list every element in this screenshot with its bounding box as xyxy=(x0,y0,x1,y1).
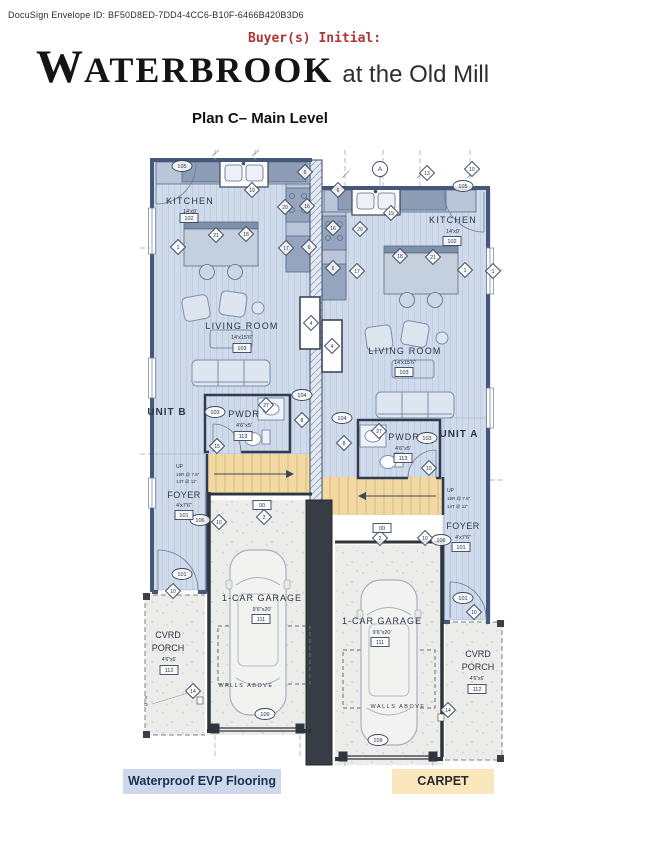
keynote-101: 101 xyxy=(175,511,193,520)
svg-text:1: 1 xyxy=(492,269,495,275)
svg-text:113: 113 xyxy=(399,456,408,462)
plan-label-unit-a: UNIT A xyxy=(440,429,479,440)
plan-label-living-room: LIVING ROOM xyxy=(368,346,441,356)
car-unit-a-garage xyxy=(357,580,421,745)
svg-text:111: 111 xyxy=(257,617,265,623)
plan-label-1-car-garage: 1-CAR GARAGE xyxy=(222,593,302,603)
svg-text:10: 10 xyxy=(216,520,222,526)
svg-text:101: 101 xyxy=(456,545,465,551)
svg-text:109: 109 xyxy=(260,712,269,718)
svg-text:6: 6 xyxy=(308,245,311,251)
svg-text:10: 10 xyxy=(469,167,475,173)
svg-text:14: 14 xyxy=(190,689,196,695)
legend-carpet: CARPET xyxy=(392,769,494,794)
plan-label-15r-7-5-: 15R @ 7.5" xyxy=(176,472,200,477)
svg-text:10: 10 xyxy=(471,610,477,616)
svg-text:14: 14 xyxy=(445,708,451,714)
svg-text:105: 105 xyxy=(177,164,186,170)
keynote-103: 103 xyxy=(395,368,413,377)
plan-label-4-6-x6-: 4'6"x6' xyxy=(470,676,485,682)
plan-label-walls-above: WALLS ABOVE xyxy=(370,704,425,710)
svg-text:A: A xyxy=(378,166,383,173)
svg-text:15: 15 xyxy=(426,466,432,472)
svg-text:1: 1 xyxy=(464,268,467,274)
brand-initial-letter: W xyxy=(36,41,84,93)
keynote-103: 103 xyxy=(417,433,437,444)
svg-text:19: 19 xyxy=(388,211,394,217)
plan-label-living-room: LIVING ROOM xyxy=(205,321,278,331)
porch-post-detail-b xyxy=(197,697,203,704)
svg-text:18: 18 xyxy=(243,232,249,238)
keynote-112: 112 xyxy=(160,666,178,675)
keynote-113: 113 xyxy=(394,454,412,463)
keynote-101: 101 xyxy=(452,543,470,552)
plan-label-14t-11-: 14T @ 11" xyxy=(447,504,468,509)
keynote-106: 106 xyxy=(431,535,451,546)
svg-text:20: 20 xyxy=(282,205,288,211)
svg-text:101: 101 xyxy=(458,596,467,602)
plan-label-up: UP xyxy=(176,464,184,470)
svg-text:102: 102 xyxy=(184,216,193,222)
plan-label-foyer: FOYER xyxy=(446,521,480,531)
plan-label-pwdr: PWDR xyxy=(388,432,420,442)
plan-label-cvrd: CVRD xyxy=(155,630,181,640)
keynote-111: 111 xyxy=(371,638,389,647)
svg-text:2: 2 xyxy=(379,536,382,542)
svg-text:13: 13 xyxy=(424,171,430,177)
svg-text:10: 10 xyxy=(170,589,176,595)
plan-label-pwdr: PWDR xyxy=(228,409,260,419)
svg-text:19: 19 xyxy=(249,188,255,194)
svg-text:105: 105 xyxy=(458,184,467,190)
svg-text:111: 111 xyxy=(376,640,384,646)
plan-label-4-x7-6-: 4'x7'6" xyxy=(176,503,192,509)
plan-label-4-x7-6-: 4'x7'6" xyxy=(455,535,471,541)
svg-text:6: 6 xyxy=(332,266,335,272)
svg-text:27: 27 xyxy=(376,429,382,435)
svg-text:8: 8 xyxy=(301,418,304,424)
stairs-unit-b xyxy=(207,454,318,492)
keynote-103: 103 xyxy=(205,407,225,418)
keynote-109: 109 xyxy=(368,735,388,746)
plan-label-porch: PORCH xyxy=(462,662,495,672)
plan-label-cvrd: CVRD xyxy=(465,649,491,659)
keynote-10: 10 xyxy=(465,162,480,177)
brand-subtitle: at the Old Mill xyxy=(342,61,489,88)
keynote-105: 105 xyxy=(453,181,473,192)
svg-text:1: 1 xyxy=(177,245,180,251)
keynote-00: 00 xyxy=(253,501,271,510)
kitchen-unit-a xyxy=(322,189,476,308)
plan-label-4-6-x5-: 4'6"x5' xyxy=(236,423,252,429)
svg-text:16: 16 xyxy=(330,226,336,232)
svg-text:109: 109 xyxy=(373,738,382,744)
plan-label-walls-above: WALLS ABOVE xyxy=(218,683,273,689)
plan-label-porch: PORCH xyxy=(152,643,185,653)
plan-label-14-x15-6-: 14'x15'6" xyxy=(394,360,416,366)
svg-text:113: 113 xyxy=(239,434,248,440)
svg-text:15: 15 xyxy=(214,444,220,450)
plan-label-4-6-x6-: 4'6"x6' xyxy=(162,657,177,663)
keynote-101: 101 xyxy=(172,569,192,580)
plan-label-kitchen: KITCHEN xyxy=(166,196,214,206)
svg-text:10: 10 xyxy=(422,536,428,542)
svg-text:104: 104 xyxy=(337,416,346,422)
keynote-104: 104 xyxy=(332,413,352,424)
svg-text:112: 112 xyxy=(165,668,174,674)
svg-text:16: 16 xyxy=(304,204,310,210)
svg-text:2: 2 xyxy=(263,515,266,521)
svg-text:8: 8 xyxy=(343,441,346,447)
keynote-103: 103 xyxy=(233,344,251,353)
svg-text:00: 00 xyxy=(259,503,265,509)
svg-text:103: 103 xyxy=(210,410,219,416)
plan-label-x: X xyxy=(144,695,147,700)
svg-text:101: 101 xyxy=(179,513,188,519)
keynote-101: 101 xyxy=(453,593,473,604)
brand-title: WATERBROOKat the Old Mill xyxy=(36,40,489,94)
svg-text:20: 20 xyxy=(357,227,363,233)
svg-text:112: 112 xyxy=(473,687,482,693)
svg-text:6: 6 xyxy=(337,188,340,194)
document-page: DocuSign Envelope ID: BF50D8ED-7DD4-4CC6… xyxy=(0,0,650,841)
stairs-unit-a xyxy=(322,477,443,515)
keynote-105: 105 xyxy=(172,161,192,172)
plan-label-kitchen: KITCHEN xyxy=(429,215,477,225)
svg-text:103: 103 xyxy=(422,436,431,442)
svg-text:106: 106 xyxy=(436,538,445,544)
svg-text:00: 00 xyxy=(379,526,385,532)
svg-text:21: 21 xyxy=(213,233,219,239)
plan-label-foyer: FOYER xyxy=(167,490,201,500)
plan-label-4-6-x5-: 4'6"x5' xyxy=(395,446,411,452)
keynote-102: 102 xyxy=(180,214,198,223)
porch-post-detail-a xyxy=(438,714,444,721)
plan-title: Plan C– Main Level xyxy=(0,110,520,127)
keynote-111: 111 xyxy=(252,615,270,624)
plan-label-14-x15-6-: 14'x15'6" xyxy=(231,335,253,341)
svg-text:103: 103 xyxy=(399,370,408,376)
legend-evp-flooring: Waterproof EVP Flooring xyxy=(123,769,281,794)
svg-text:102: 102 xyxy=(447,239,456,245)
keynote-00: 00 xyxy=(373,524,391,533)
svg-text:106: 106 xyxy=(195,518,204,524)
svg-text:101: 101 xyxy=(177,572,186,578)
plan-label-14t-11-: 14T @ 11" xyxy=(176,479,197,484)
brand-rest-letters: ATERBROOK xyxy=(84,50,333,90)
keynote-102: 102 xyxy=(443,237,461,246)
svg-text:17: 17 xyxy=(354,269,360,275)
keynote-104: 104 xyxy=(292,390,312,401)
svg-text:103: 103 xyxy=(237,346,246,352)
floor-plan-drawing: KITCHEN14'x9'LIVING ROOM14'x15'6"UNIT BP… xyxy=(0,148,650,770)
svg-text:104: 104 xyxy=(297,393,306,399)
svg-text:21: 21 xyxy=(430,255,436,261)
svg-text:6: 6 xyxy=(304,170,307,176)
svg-text:17: 17 xyxy=(283,246,289,252)
keynote-109: 109 xyxy=(255,709,275,720)
svg-text:27: 27 xyxy=(263,403,269,409)
plan-label-14-x9-: 14'x9' xyxy=(446,229,460,235)
plan-label-15r-7-5-: 15R @ 7.5" xyxy=(447,496,471,501)
plan-label-1-car-garage: 1-CAR GARAGE xyxy=(342,616,422,626)
keynote-113: 113 xyxy=(234,432,252,441)
plan-label-9-6-x20-: 9'6"x20' xyxy=(252,607,271,613)
svg-text:18: 18 xyxy=(397,254,403,260)
plan-label-up: UP xyxy=(447,488,455,494)
docusign-envelope-id: DocuSign Envelope ID: BF50D8ED-7DD4-4CC6… xyxy=(8,10,304,20)
svg-text:4: 4 xyxy=(310,321,313,327)
keynote-112: 112 xyxy=(468,685,486,694)
svg-text:4: 4 xyxy=(331,344,334,350)
plan-label-unit-b: UNIT B xyxy=(147,407,186,418)
plan-label-9-6-x20-: 9'6"x20' xyxy=(372,630,391,636)
car-unit-b-garage xyxy=(226,550,290,715)
keynote-A: A xyxy=(373,162,388,177)
keynote-13: 13 xyxy=(420,166,435,181)
